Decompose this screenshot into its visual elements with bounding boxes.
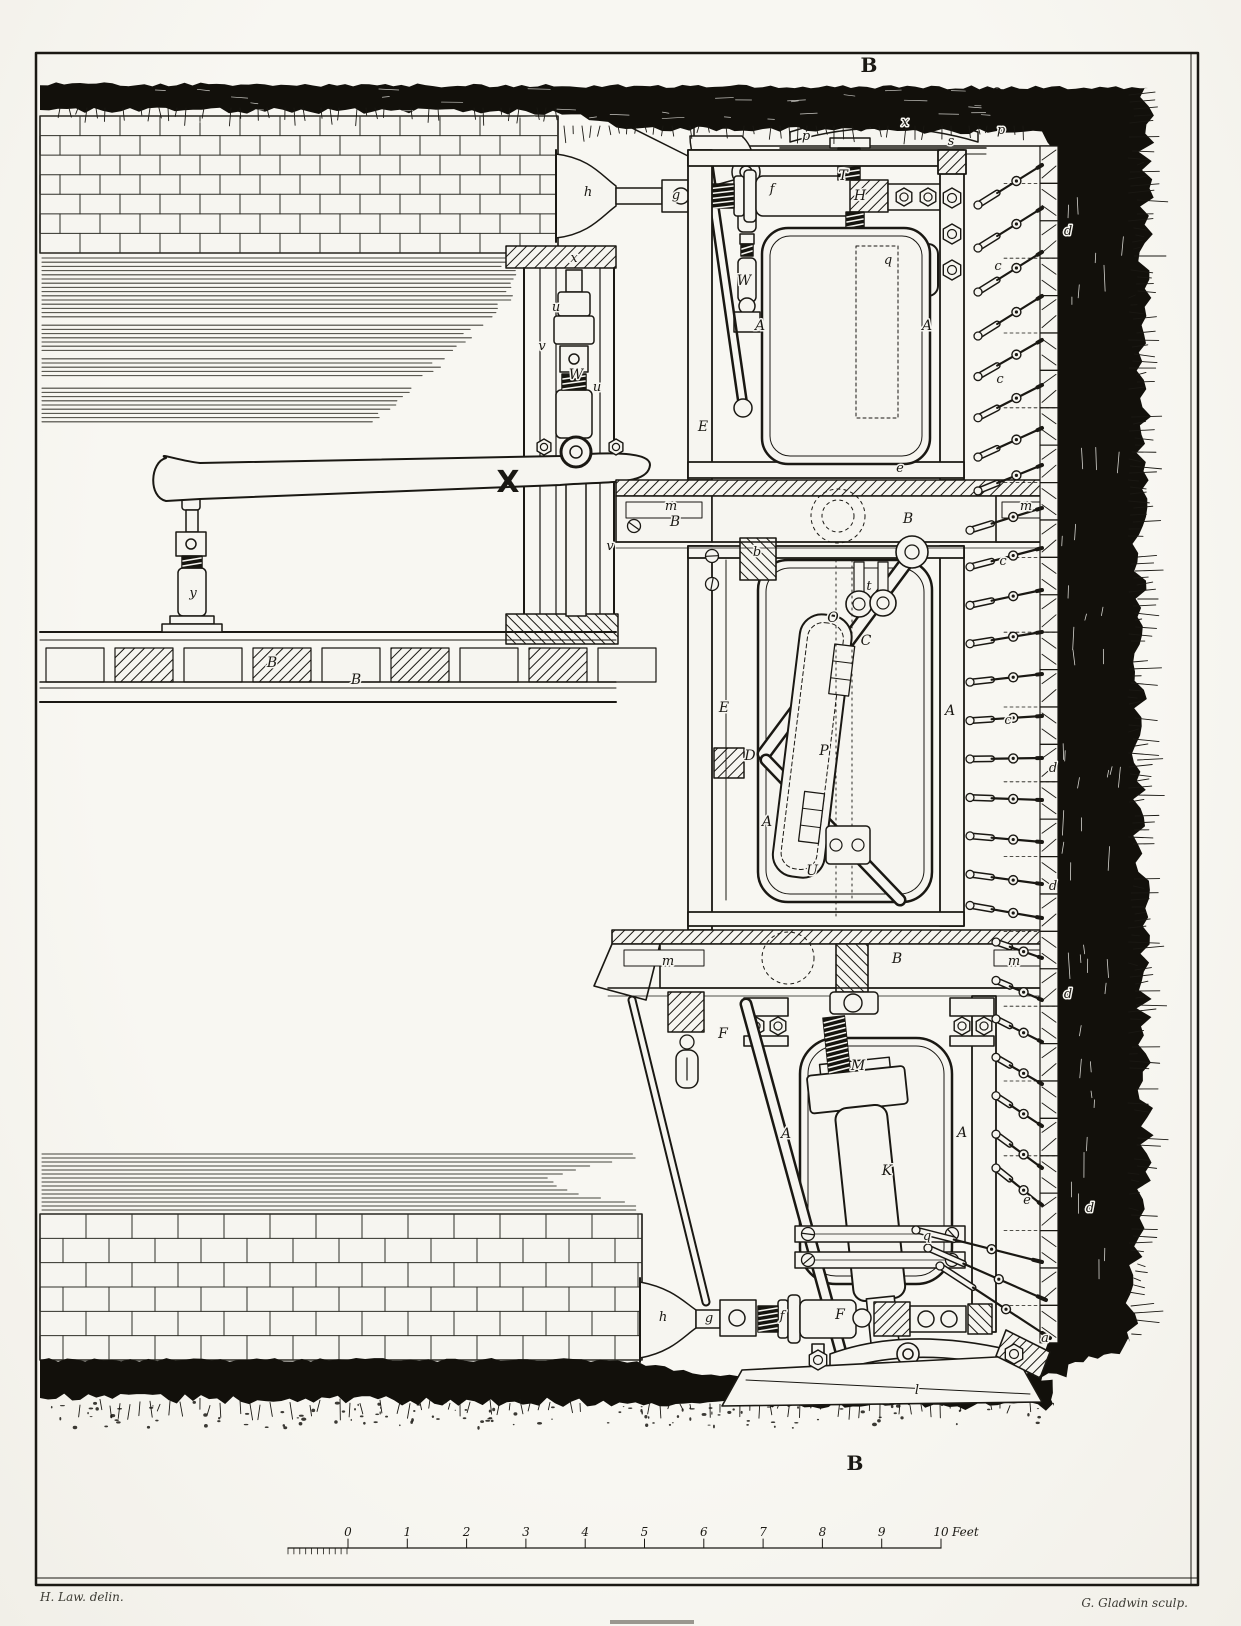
part-label: C [861, 633, 872, 649]
abutting-screw [974, 385, 1042, 422]
scale-number: 1 [403, 1525, 411, 1539]
scale-number: 9 [878, 1525, 886, 1539]
part-label: c [1004, 713, 1012, 728]
part-label: l [915, 1383, 919, 1398]
abutting-screw [966, 901, 1042, 918]
part-label: b [753, 545, 761, 560]
part-label: x [901, 115, 909, 130]
engraving-plate: 012345678910Feet B B X H. Law. delin. G.… [0, 0, 1241, 1626]
scale-number: 6 [700, 1525, 708, 1539]
part-label: p [802, 129, 811, 144]
part-label: v [538, 339, 546, 354]
part-label: c [996, 372, 1004, 387]
part-label: A [779, 1126, 791, 1142]
part-label: q [884, 253, 892, 268]
part-label: A [753, 318, 765, 334]
top-cell-panel [762, 228, 930, 464]
foot-shoe [722, 1330, 1050, 1406]
part-label: g [705, 1311, 713, 1326]
part-label: B [891, 951, 902, 967]
scale-number: 2 [462, 1525, 471, 1539]
joint-block-D [714, 748, 744, 778]
part-label: m [662, 954, 674, 969]
part-label: H [853, 188, 867, 204]
abutting-screw [974, 340, 1042, 381]
part-label: A [760, 814, 772, 830]
part-label: d [1049, 761, 1057, 776]
part-label: m [1020, 499, 1032, 514]
abutting-screw [992, 1164, 1042, 1205]
scale-number: 8 [819, 1525, 827, 1539]
timber-lintel [506, 246, 616, 268]
part-label: P [818, 743, 829, 759]
scale-number: 4 [580, 1525, 589, 1539]
arch-soffit-shading [42, 258, 516, 422]
part-label: s [948, 134, 955, 149]
part-label: F [834, 1307, 846, 1323]
part-label: d [1049, 879, 1057, 894]
water-shading [42, 1154, 636, 1210]
part-label: e [1023, 1193, 1031, 1208]
section-mark-bottom: B [847, 1451, 864, 1475]
part-label: E [718, 700, 729, 716]
scale-bar: 012345678910Feet [288, 1525, 979, 1554]
part-label: m [665, 499, 677, 514]
part-label: x [570, 251, 578, 266]
part-label: B [902, 511, 913, 527]
abutting-screw [966, 673, 1042, 686]
scale-number: 5 [641, 1525, 649, 1539]
part-label: M [850, 1058, 866, 1074]
abutting-screw [966, 590, 1042, 609]
part-label: F [717, 1026, 729, 1042]
part-label: h [584, 185, 592, 200]
abutting-screw [992, 1092, 1042, 1126]
abutting-screw [974, 428, 1042, 461]
scale-number: 10 [933, 1525, 949, 1539]
part-label: B [266, 655, 277, 671]
abutting-screw [966, 793, 1042, 803]
abutting-screw [992, 1015, 1042, 1042]
part-label: v [606, 539, 614, 554]
part-label: c [994, 259, 1002, 274]
highlight-x-mark: X [496, 465, 519, 500]
part-label: B [669, 514, 680, 530]
abutting-screw [966, 754, 1042, 763]
abutting-screw [992, 1053, 1042, 1084]
part-label: u [593, 380, 601, 395]
part-label: d [1064, 987, 1072, 1002]
part-label: W [569, 367, 585, 383]
cropped-caption-fragment [610, 1620, 694, 1624]
part-label: d [1086, 1201, 1094, 1216]
part-label: g [672, 188, 680, 203]
poling-boards [1004, 146, 1058, 1343]
part-label: h [659, 1310, 667, 1325]
part-label: D [743, 748, 755, 764]
abutting-screw [966, 832, 1042, 844]
scale-number: 7 [759, 1525, 767, 1539]
part-label: d [1064, 224, 1072, 239]
scale-unit-label: Feet [951, 1525, 979, 1539]
part-label: c [999, 554, 1007, 569]
part-label: O [827, 610, 839, 626]
abutting-screw [974, 252, 1042, 296]
part-label: m [1008, 954, 1020, 969]
part-label: A [943, 703, 955, 719]
part-label: U [806, 863, 819, 879]
abutting-screw [974, 208, 1042, 252]
part-label: W [737, 273, 753, 289]
part-label: A [955, 1125, 967, 1141]
tunnel-shield-section-engraving: 012345678910Feet B B X H. Law. delin. G.… [0, 0, 1241, 1626]
abutting-screw [974, 165, 1042, 209]
credit-delineator: H. Law. delin. [39, 1590, 124, 1604]
part-label: u [552, 300, 560, 315]
scale-number: 0 [344, 1525, 352, 1539]
abutting-screw [966, 870, 1042, 884]
section-mark-top: B [861, 53, 878, 77]
part-label: e [896, 461, 904, 476]
prop-jack [162, 496, 222, 632]
part-label: E [697, 419, 708, 435]
part-label: y [188, 586, 197, 601]
masonry-top-left [40, 116, 558, 253]
part-label: q [923, 1229, 931, 1244]
part-label: p [997, 123, 1006, 138]
scale-number: 3 [522, 1525, 530, 1539]
part-label: A [920, 318, 932, 334]
abutting-screw [992, 1130, 1042, 1168]
credit-engraver: G. Gladwin sculp. [1081, 1596, 1188, 1610]
part-label: K [881, 1163, 894, 1179]
part-label: t [866, 579, 872, 594]
abutting-screw [966, 632, 1042, 648]
part-label: B [350, 672, 361, 688]
part-label: a [1041, 1331, 1049, 1346]
abutting-screw [974, 296, 1042, 340]
masonry-bottom-left [40, 1214, 642, 1360]
